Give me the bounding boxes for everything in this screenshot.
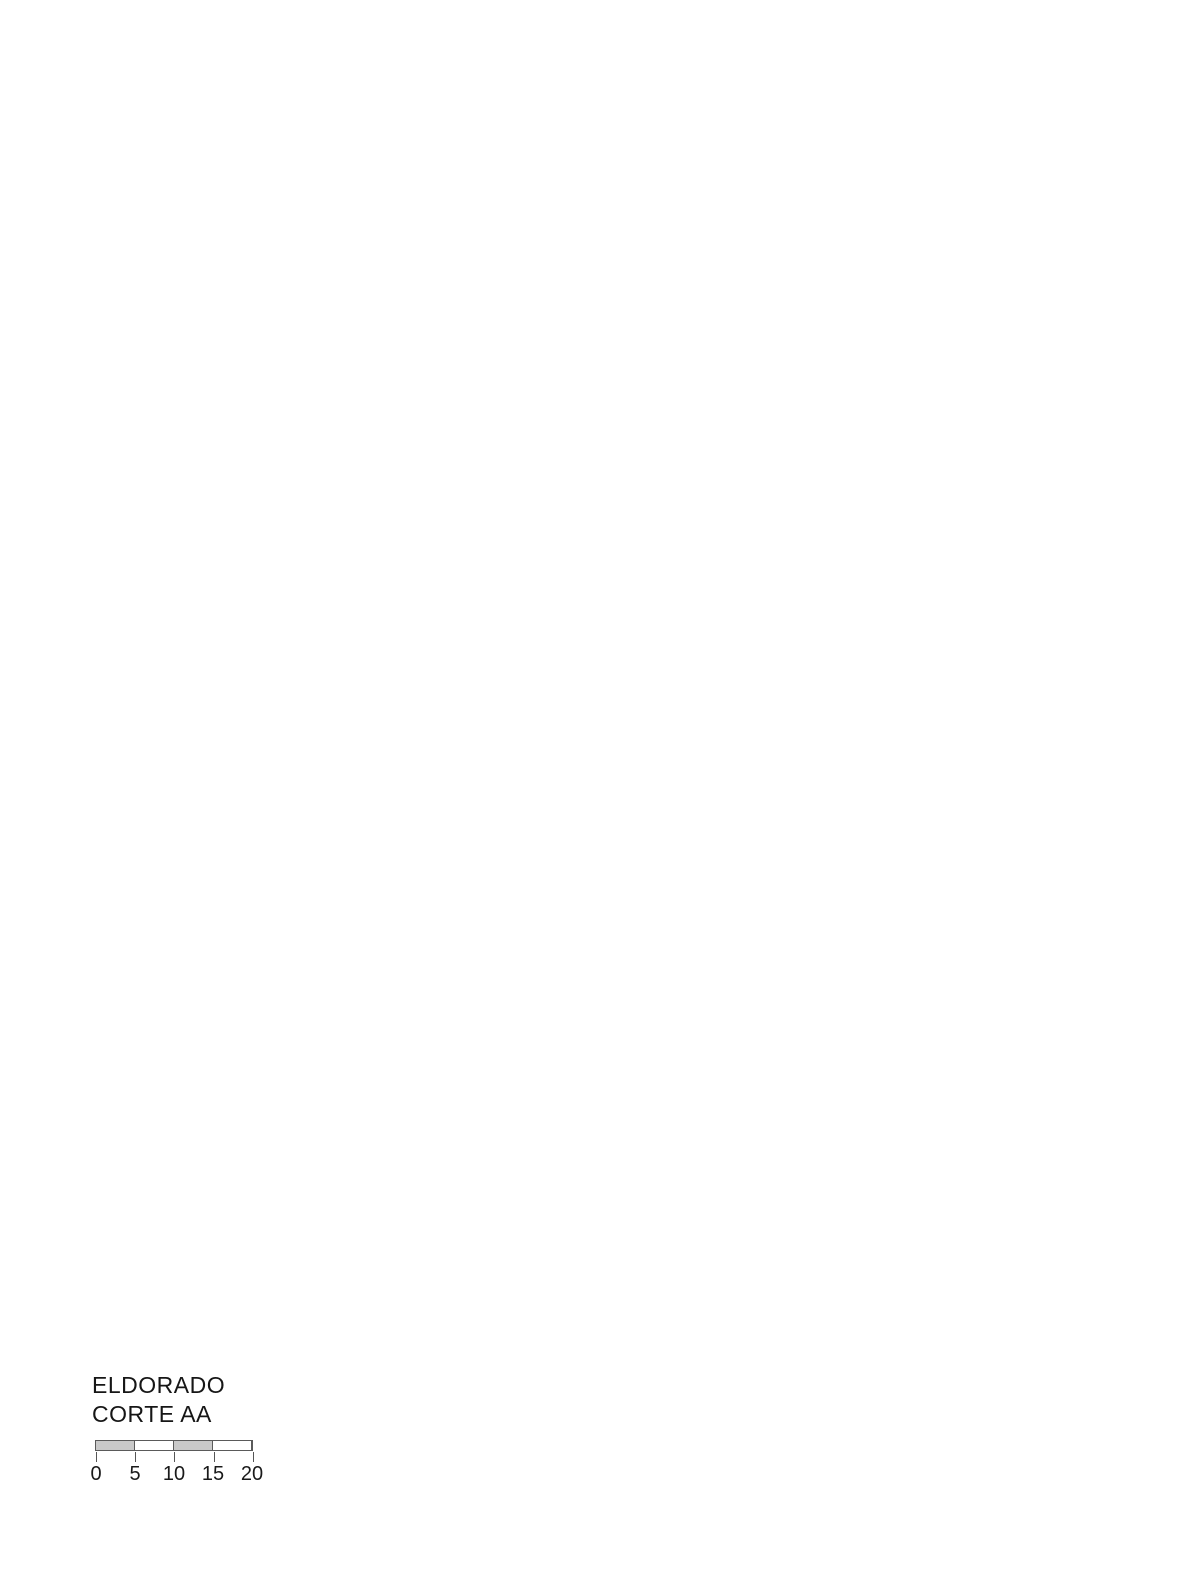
scale-label-5: 5: [129, 1463, 140, 1486]
project-title: ELDORADO: [92, 1371, 225, 1400]
scale-bar: 0 5 10 15 20: [95, 1440, 253, 1489]
drawing-sheet: ELDORADO CORTE AA 0 5 10 15 20: [0, 0, 1181, 1569]
scale-segment: [96, 1441, 135, 1450]
scale-tick: [214, 1452, 215, 1462]
scale-label-10: 10: [163, 1463, 185, 1486]
scale-label-15: 15: [202, 1463, 224, 1486]
scale-segment: [174, 1441, 213, 1450]
scale-tick: [253, 1452, 254, 1462]
scale-label-0: 0: [90, 1463, 101, 1486]
scale-labels: 0 5 10 15 20: [95, 1463, 253, 1489]
title-block: ELDORADO CORTE AA: [92, 1371, 225, 1429]
scale-tick: [174, 1452, 175, 1462]
scale-label-20: 20: [241, 1463, 263, 1486]
scale-segment: [135, 1441, 174, 1450]
scale-tick: [135, 1452, 136, 1462]
scale-bar-strip: [95, 1440, 253, 1451]
scale-tick: [96, 1452, 97, 1462]
building-section-drawing: [0, 0, 1181, 1569]
scale-segment: [213, 1441, 252, 1450]
section-label: CORTE AA: [92, 1400, 225, 1429]
